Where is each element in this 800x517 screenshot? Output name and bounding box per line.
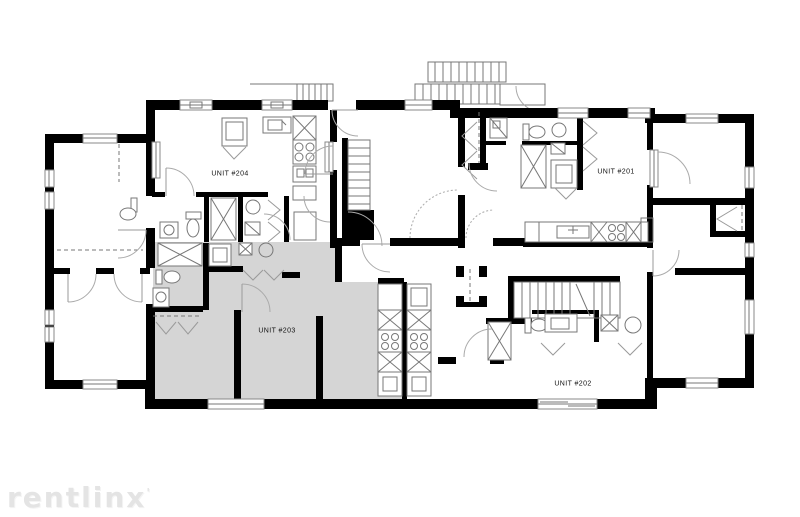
unit-202-label: UNIT #202 [554, 381, 591, 388]
floor-plan-svg [0, 0, 800, 517]
rentlinx-watermark: rentlinx' [7, 484, 150, 512]
unit-204-label: UNIT #204 [211, 171, 248, 178]
unit-203-label: UNIT #203 [258, 328, 295, 335]
right-wing-closet [717, 205, 742, 231]
bathroom-unit-202 [470, 269, 642, 360]
kitchen-unit-201 [525, 218, 653, 242]
left-wing-fixtures [57, 144, 143, 250]
bathroom-unit-204 [160, 198, 280, 242]
rentlinx-watermark-text: rentlinx [7, 481, 146, 514]
unit-201-label: UNIT #201 [597, 169, 634, 176]
floor-plan-image: UNIT #204 UNIT #201 UNIT #203 UNIT #202 … [0, 0, 800, 517]
rentlinx-watermark-mark: ' [146, 486, 150, 500]
